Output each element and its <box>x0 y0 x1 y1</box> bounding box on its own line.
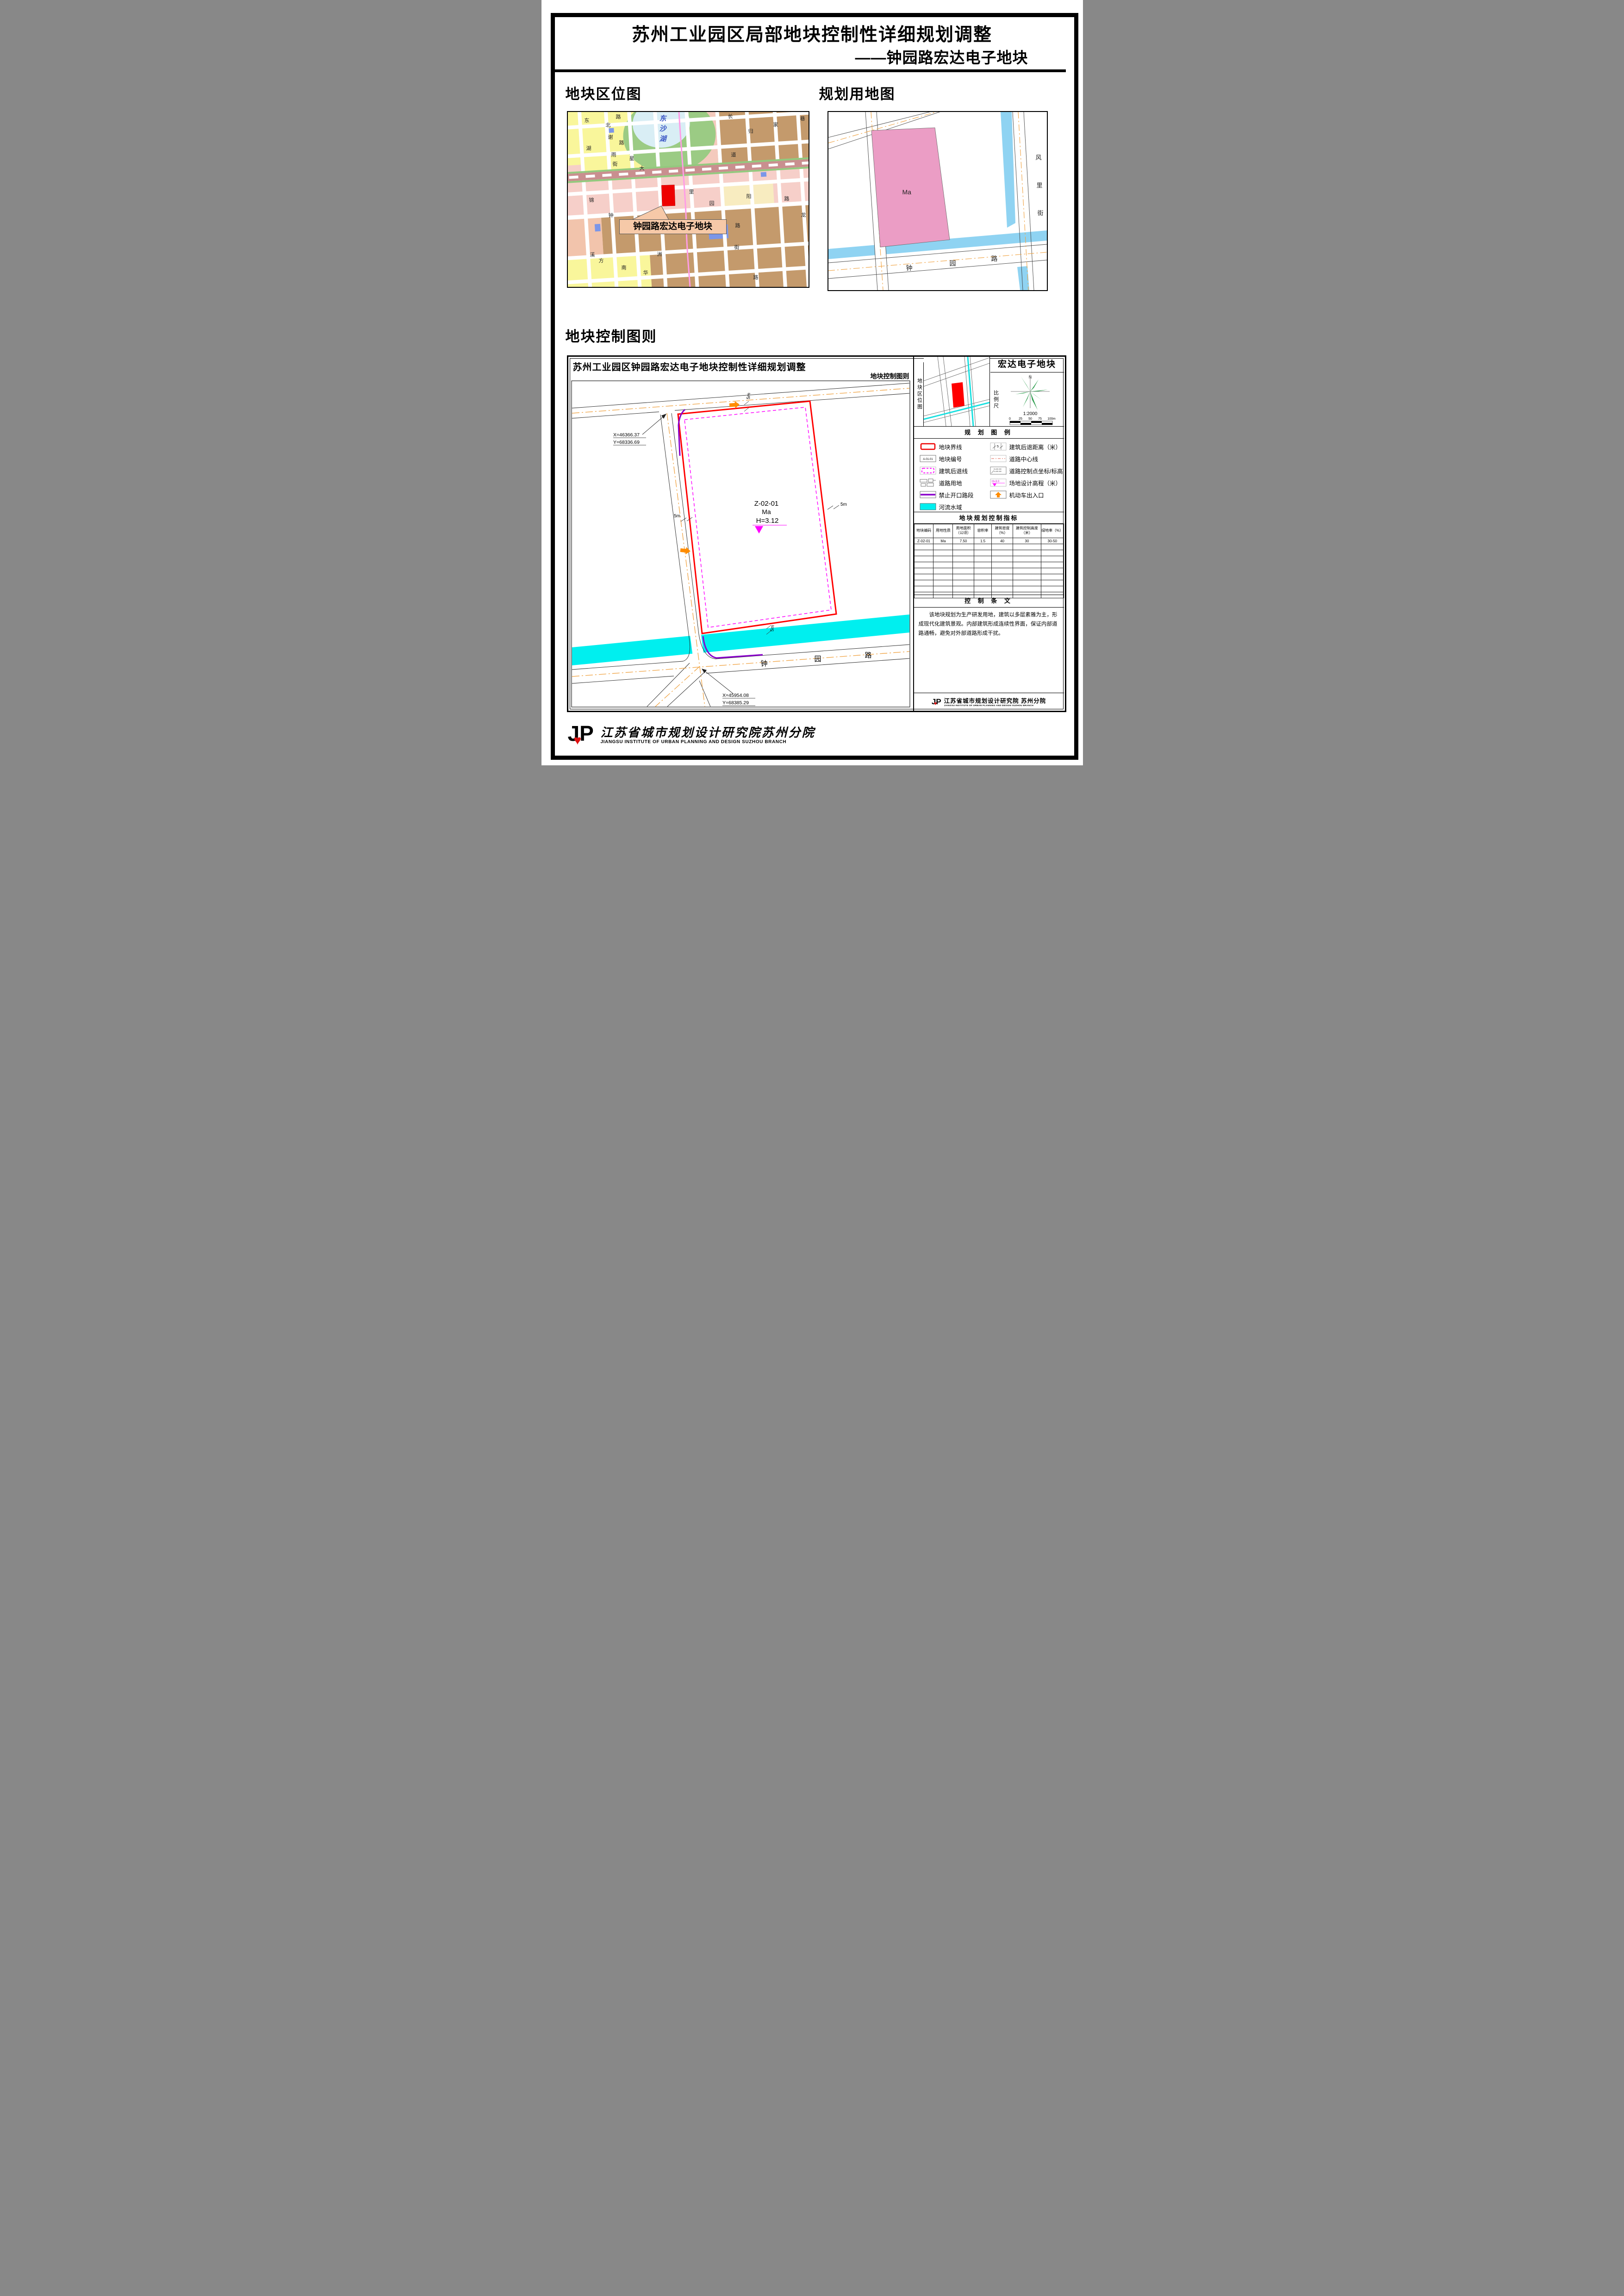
table-empty-row <box>914 568 1064 574</box>
compass-rose <box>1015 377 1048 410</box>
svg-text:Y=68385.29: Y=68385.29 <box>722 700 749 706</box>
svg-text:X=46366.37: X=46366.37 <box>613 432 640 438</box>
plot-number-symbol: A-01-01 <box>920 454 936 463</box>
provisions-header: 控 制 条 文 <box>914 595 1064 608</box>
street-char: 风 <box>1036 155 1042 161</box>
street-char: 街 <box>734 245 740 250</box>
scale-sidebar-label: 比例尺 <box>991 379 1000 421</box>
road-name-char: 钟 <box>760 660 767 668</box>
scale-tick: 50 <box>1028 417 1032 421</box>
street-char: 星 <box>629 156 635 161</box>
panel-title: 宏达电子地块 <box>990 357 1064 372</box>
landuse-map-base <box>828 112 1047 290</box>
plot-boundary-symbol <box>920 442 936 451</box>
north-label: N <box>1028 375 1032 379</box>
setback-line-symbol <box>920 466 936 475</box>
road-land-symbol <box>920 478 936 487</box>
road-name-char: 路 <box>865 652 871 659</box>
street-char: 道 <box>731 153 736 158</box>
plot-callout: 钟园路宏达电子地块 <box>619 219 727 234</box>
institute-name-cn: 江苏省城市规划设计研究院 苏州分院 <box>944 696 1046 705</box>
indicators-header: 地块规划控制指标 <box>914 512 1064 524</box>
table-empty-row <box>914 544 1064 550</box>
plot-landuse-label: Ma <box>762 508 771 515</box>
institute-name-en: JIANGSU INSTITUTE OF URBAN PLANNING AND … <box>944 705 1046 707</box>
street-char: 北 <box>606 123 611 128</box>
legend-label: 道路中心线 <box>1009 454 1039 463</box>
legend-label: 机动车出入口 <box>1009 490 1044 499</box>
street-char: 路 <box>784 197 790 202</box>
page-title: 苏州工业园区局部地块控制性详细规划调整 <box>541 20 1083 46</box>
street-char: 巷 <box>800 117 805 122</box>
design-elevation-symbol: H=3.0 <box>990 478 1007 487</box>
location-map: 东沙湖 东 路 北 谢 路 湖 雨 街 星 大 道 长 归 家 巷 里 园 阳 … <box>567 111 809 288</box>
location-plot-red <box>661 185 675 206</box>
street-char: 洲 <box>657 252 662 257</box>
compass-scale-panel: N 1:2000 0 25 50 75 100m <box>1000 372 1064 426</box>
landuse-plot-label: Ma <box>902 189 911 195</box>
street-char: 家 <box>773 123 778 128</box>
setback-dim: 5m <box>674 514 680 519</box>
control-drawing: 5m 5m 5m 5m Z-02-01 Ma H=3.12 X=46366.37… <box>568 357 913 711</box>
street-char: 钟 <box>906 265 913 271</box>
street-char: 路 <box>991 255 998 262</box>
landuse-map-section-title: 规划用地图 <box>819 82 896 103</box>
street-char: 路 <box>616 115 621 120</box>
setback-dim: 5m <box>746 392 752 399</box>
svg-text:Y=68336.69: Y=68336.69 <box>613 440 640 445</box>
plot-code-label: Z-02-01 <box>754 500 778 508</box>
scale-tick: 0 <box>1009 417 1011 421</box>
table-empty-row <box>914 586 1064 592</box>
indicators-table-wrap: 地块编码用地性质 用地面积（公顷）容积率 建筑密度（%）建筑控制高度（米） 绿地… <box>914 523 1064 598</box>
legend-label: 河流水域 <box>939 503 962 511</box>
road-name-char: 园 <box>814 655 821 663</box>
scale-ratio: 1:2000 <box>1023 411 1037 416</box>
vehicle-entrance-symbol <box>990 490 1007 499</box>
control-minimap <box>924 357 990 426</box>
street-char: 路 <box>619 141 624 146</box>
setback-dim: 5m <box>770 625 776 632</box>
scale-tick: 100m <box>1047 417 1056 421</box>
street-char: 归 <box>748 129 753 134</box>
street-char: 钟 <box>609 213 614 218</box>
legend-label: 地块界线 <box>939 442 962 451</box>
page-subtitle: ——钟园路宏达电子地块 <box>855 45 1028 68</box>
plot-elevation-label: H=3.12 <box>756 517 778 525</box>
table-empty-row <box>914 574 1064 580</box>
street-char: 街 <box>1038 210 1044 216</box>
control-chart: 苏州工业园区钟园路宏达电子地块控制性详细规划调整 地块控制图则 <box>567 355 1066 712</box>
street-char: 龙 <box>801 213 806 218</box>
legend-label: 建筑后退距离（米） <box>1009 442 1062 451</box>
legend-label: 建筑后退线 <box>939 466 968 475</box>
street-char: 东 <box>585 118 590 124</box>
street-char: 方 <box>599 259 604 264</box>
svg-text:A-01-01: A-01-01 <box>923 458 933 461</box>
svg-text:H=3.0: H=3.0 <box>992 480 1000 483</box>
street-char: 街 <box>613 162 618 167</box>
street-char: 南 <box>622 266 627 271</box>
legend-label: 道路控制点坐标/标高 <box>1009 466 1063 475</box>
street-char: 华 <box>643 271 648 276</box>
street-char: 雨 <box>611 153 616 158</box>
provisions-text: 该地块规划为生产研发用地，建筑以多层素雅为主，形成现代化建筑景观。内部建筑形成连… <box>914 607 1063 638</box>
no-access-symbol <box>920 490 936 499</box>
table-empty-row <box>914 556 1064 562</box>
table-empty-row <box>914 550 1064 556</box>
svg-text:X=45954.08: X=45954.08 <box>722 693 749 698</box>
street-char: 阳 <box>747 194 752 199</box>
legend: 地块界线 A-01-01 地块编号 建筑后退线 道路用地 禁止开口路段 河流水域 <box>914 439 1064 512</box>
legend-label: 地块编号 <box>939 454 962 463</box>
street-char: 大 <box>640 166 645 171</box>
street-char: 锦 <box>589 198 594 203</box>
street-char: 里 <box>689 190 694 195</box>
location-map-base <box>568 112 809 287</box>
landuse-map: Ma 风 里 街 钟 园 路 <box>828 111 1048 291</box>
street-char: 里 <box>1037 182 1043 188</box>
legend-label: 禁止开口路段 <box>939 490 974 499</box>
control-point-symbol: X=XX.XXY=XX.XX <box>990 466 1007 475</box>
street-char: 湖 <box>586 146 591 151</box>
footer-name-cn: 江苏省城市规划设计研究院苏州分院 <box>601 723 815 740</box>
title-separator <box>555 69 1066 72</box>
location-map-section-title: 地块区位图 <box>566 82 642 103</box>
street-char: 路 <box>735 223 740 229</box>
minimap-sidebar-label: 地块区位图 <box>914 362 924 426</box>
table-header-row: 地块编码用地性质 用地面积（公顷）容积率 建筑密度（%）建筑控制高度（米） 绿地… <box>914 524 1064 538</box>
street-char: 园 <box>709 201 715 206</box>
street-char: 谢 <box>608 135 613 140</box>
river-water-symbol <box>920 503 936 511</box>
control-chart-section-title: 地块控制图则 <box>566 325 657 346</box>
setback-dim: 5m <box>840 502 847 507</box>
institute-strip: JP♥ 江苏省城市规划设计研究院 苏州分院 JIANGSU INSTITUTE … <box>914 693 1064 710</box>
svg-text:Y=XX.XX: Y=XX.XX <box>994 470 1002 472</box>
footer-name-en: JIANGSU INSTITUTE OF URBAN PLANNING AND … <box>601 739 787 745</box>
road-centerline-symbol <box>990 454 1007 463</box>
scale-tick: 75 <box>1038 417 1042 421</box>
table-empty-row <box>914 562 1064 568</box>
institute-logo: JP♥ <box>932 698 941 706</box>
lake-label: 东沙湖 <box>659 115 666 145</box>
scale-tick: 25 <box>1019 417 1022 421</box>
table-data-row: Z-02-01Ma 7.501.5 4030 30-50 <box>914 538 1064 544</box>
street-char: 路 <box>753 275 759 280</box>
setback-distance-symbol: 5 <box>990 442 1007 451</box>
table-empty-row <box>914 580 1064 586</box>
street-char: 长 <box>728 114 733 119</box>
scale-bar <box>1010 421 1052 425</box>
indicators-table: 地块编码用地性质 用地面积（公顷）容积率 建筑密度（%）建筑控制高度（米） 绿地… <box>914 523 1064 598</box>
street-char: 园 <box>950 260 956 267</box>
svg-text:5: 5 <box>997 445 999 448</box>
legend-label: 场地设计高程（米） <box>1009 478 1062 487</box>
plan-sheet: 苏州工业园区局部地块控制性详细规划调整 ——钟园路宏达电子地块 地块区位图 规划… <box>541 0 1083 765</box>
legend-header: 规 划 图 例 <box>914 426 1064 439</box>
legend-label: 道路用地 <box>939 478 962 487</box>
minimap-plot-red <box>952 382 964 408</box>
street-char: 溪 <box>590 253 595 258</box>
